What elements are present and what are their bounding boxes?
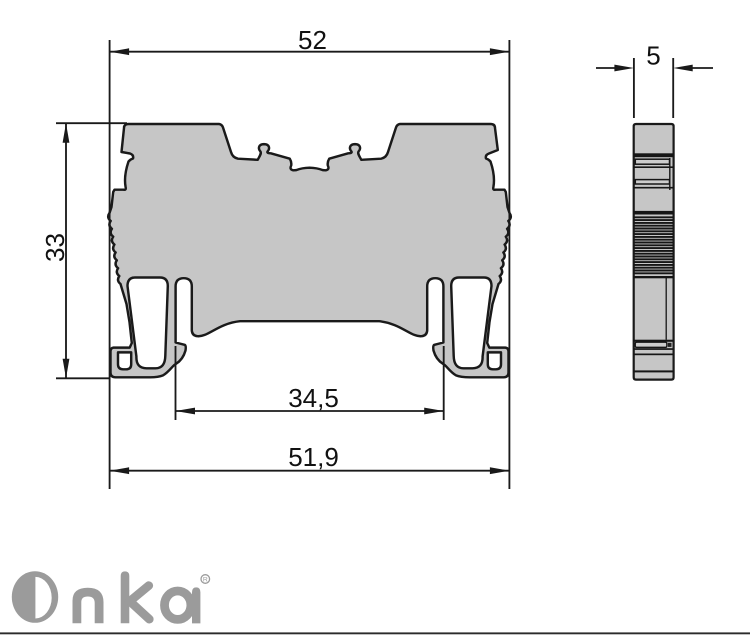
svg-text:R: R <box>203 577 208 584</box>
svg-text:34,5: 34,5 <box>288 383 339 413</box>
svg-text:33: 33 <box>40 233 70 262</box>
svg-text:52: 52 <box>298 25 327 55</box>
svg-text:5: 5 <box>646 41 660 71</box>
svg-text:51,9: 51,9 <box>288 442 339 472</box>
